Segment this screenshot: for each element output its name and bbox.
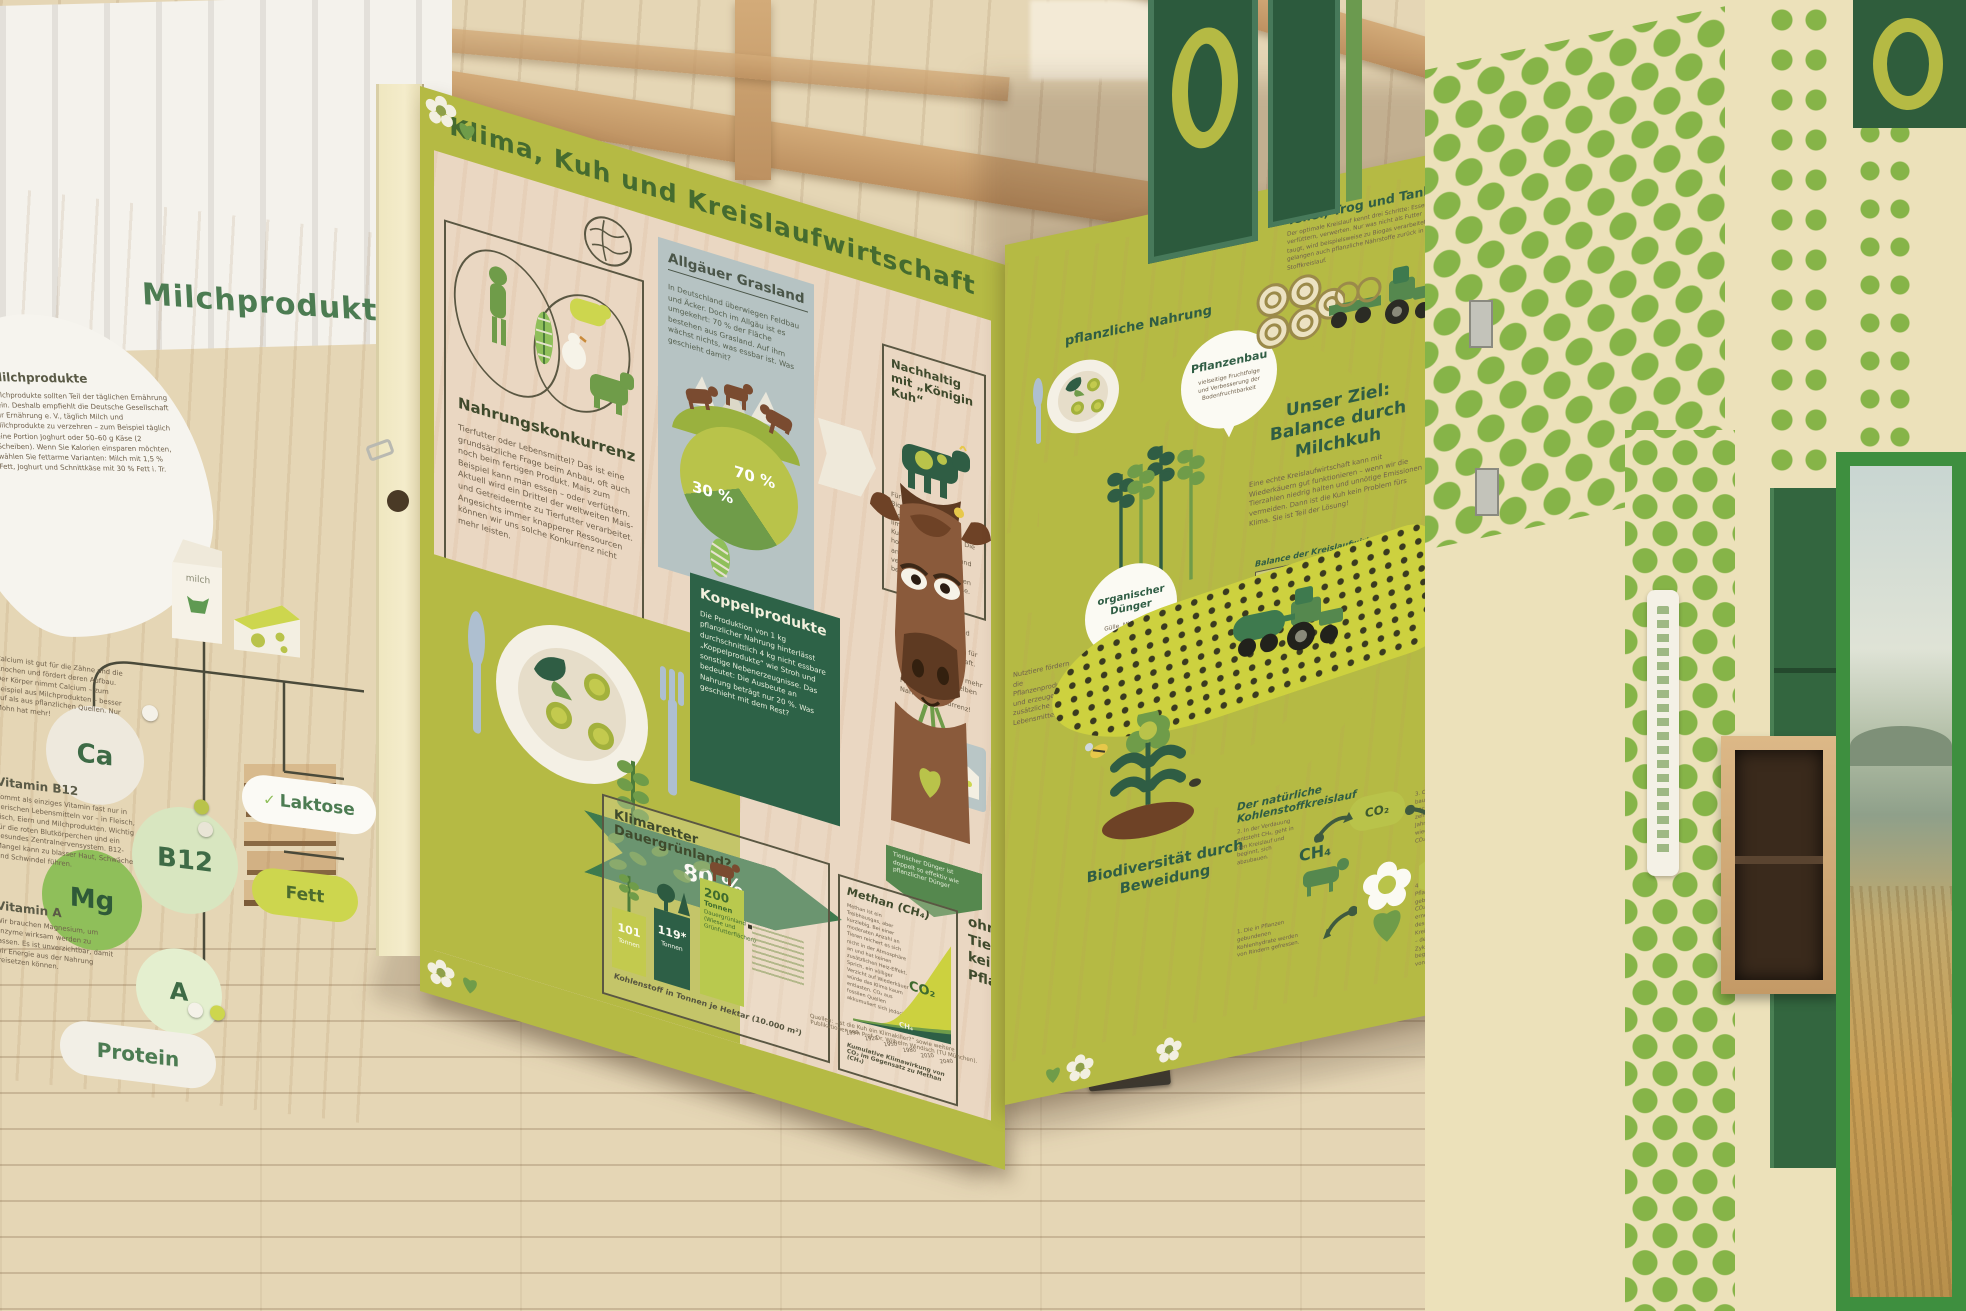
fork-tine — [678, 671, 684, 707]
board-ring-logo — [1172, 21, 1238, 155]
pie-label-70: 70 % — [734, 462, 775, 493]
milk-wall: Milchprodukte Milchprodukte Milchprodukt… — [0, 186, 390, 1127]
milk-intro-text: Milchprodukte sollten Teil der täglichen… — [0, 390, 179, 475]
photo-hill — [1850, 726, 1952, 766]
plate-small — [1033, 347, 1119, 451]
heart-leaf-icon — [458, 970, 482, 999]
cow-glyph-icon — [183, 591, 213, 621]
roof-post — [735, 0, 771, 180]
milk-intro-heading: Milchprodukte — [0, 370, 160, 387]
carbon-cycle: Der natürliche Kohlenstoffkreislauf 2. I… — [1237, 758, 1443, 1002]
year-tick: 2040 — [939, 1059, 954, 1067]
cycle-arrow — [1323, 904, 1357, 939]
green-board — [1268, 0, 1340, 228]
landscape-photo — [1850, 466, 1952, 1297]
hinge-icon — [1469, 300, 1493, 348]
green-board — [1853, 0, 1966, 128]
nutrient-fett-label: Fett — [286, 883, 325, 908]
pattern-column — [1625, 430, 1735, 1311]
nutrient-b12-label: B12 — [157, 842, 213, 879]
milk-wall-title: Milchprodukte — [141, 277, 390, 330]
door-frame — [1836, 452, 1966, 1311]
spoon-handle — [473, 656, 481, 734]
flower-heart-icon — [1355, 855, 1419, 953]
nutrient-a-label: A — [170, 977, 189, 1007]
spoon-handle — [1036, 403, 1041, 444]
pillar-shelf-line — [1774, 668, 1844, 673]
exhibition-room: Milchprodukte Milchprodukte Milchprodukt… — [0, 0, 1966, 1311]
sign-text-placeholder — [1657, 606, 1669, 856]
flower-icon — [424, 89, 458, 133]
cow-head — [870, 474, 991, 871]
side-hole — [387, 490, 409, 512]
ohne-tiere-heading: ohne Tiere keine Pflanzen — [968, 914, 991, 1006]
heart-leaf-icon — [1041, 1060, 1065, 1087]
flower-icon — [1155, 1033, 1183, 1067]
klimaretter-box: Klimaretter Dauergrünland? 101 Tonnen 11… — [602, 794, 830, 1064]
nutrient-laktose-label: Laktose — [280, 791, 355, 820]
board-ring-logo — [1873, 18, 1943, 110]
green-board-edge — [1346, 0, 1362, 202]
shadow-box-interior — [1735, 750, 1823, 980]
fork-tine — [660, 665, 666, 701]
nutrient-protein-label: Protein — [97, 1038, 179, 1072]
biodiversity-group: Biodiversität durch Beweidung — [1075, 690, 1255, 918]
bar-gruenland: 200 Tonnen Dauergrünland (Wiese und Grün… — [700, 878, 744, 1007]
wheat-icon — [618, 869, 640, 916]
check-icon: ✓ — [263, 790, 276, 810]
right-wall — [1425, 0, 1966, 1311]
green-board — [1148, 0, 1258, 264]
allgaeu-box: Allgäuer Grasland In Deutschland überwie… — [658, 237, 814, 615]
flower-icon — [1065, 1050, 1095, 1086]
fork-handle — [668, 698, 677, 797]
shadow-box-shelf — [1735, 856, 1823, 864]
hinge-icon — [1475, 468, 1499, 516]
methan-box: Methan (CH₄) Methan ist ein Treibhausgas… — [838, 874, 958, 1107]
footnote-placeholder — [752, 926, 804, 988]
pie-label-30: 30 % — [692, 477, 733, 508]
nachhaltig-heading: Nachhaltig mit „Königin Kuh“ — [891, 356, 981, 426]
photo-grass-streaks — [1850, 886, 1952, 1297]
carbon-step-1: 1. Die in Pflanzen gebundenen Kohlenhydr… — [1237, 915, 1307, 961]
pea — [1091, 398, 1104, 414]
cow-head-icon — [870, 474, 991, 871]
carbon-step-2: 2. In der Verdauung entsteht CH₄, geht i… — [1237, 816, 1301, 869]
flower-icon — [426, 954, 456, 993]
footnote-bullet — [748, 924, 752, 929]
main-panel-left: Klima, Kuh und Kreislaufwirtschaft Nahru… — [420, 86, 1005, 1170]
panel-side-face — [376, 84, 424, 956]
milk-carton-icon: milch — [166, 537, 228, 645]
nutrient-ca-label: Ca — [77, 738, 114, 772]
dot-column — [1765, 0, 1835, 520]
shadow-box — [1721, 736, 1837, 994]
co2-label: CO₂ — [1365, 801, 1389, 820]
panel-right-content: Nutztiere fördern die Pflanzenproduktion… — [1005, 169, 1445, 1063]
vertical-sign — [1647, 590, 1679, 876]
panel-left-content: Nahrungskonkurrenz Tierfutter oder Leben… — [434, 150, 991, 1120]
fork-icon — [660, 665, 686, 813]
plate-icon — [1047, 353, 1119, 440]
main-panel-right: Nutztiere fördern die Pflanzenproduktion… — [1005, 151, 1445, 1105]
transition-arrow — [818, 418, 876, 502]
